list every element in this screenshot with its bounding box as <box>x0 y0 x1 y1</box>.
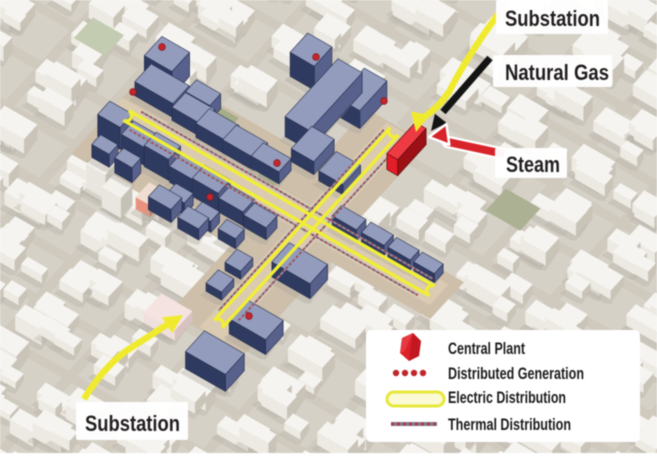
svg-text:Thermal Distribution: Thermal Distribution <box>448 416 571 434</box>
svg-text:Substation: Substation <box>505 6 600 31</box>
svg-text:Natural Gas: Natural Gas <box>505 60 609 85</box>
svg-text:Substation: Substation <box>85 411 180 436</box>
svg-text:Central Plant: Central Plant <box>448 340 525 358</box>
svg-text:Electric Distribution: Electric Distribution <box>448 389 566 407</box>
svg-text:Distributed Generation: Distributed Generation <box>448 365 584 383</box>
svg-text:Steam: Steam <box>506 152 560 177</box>
